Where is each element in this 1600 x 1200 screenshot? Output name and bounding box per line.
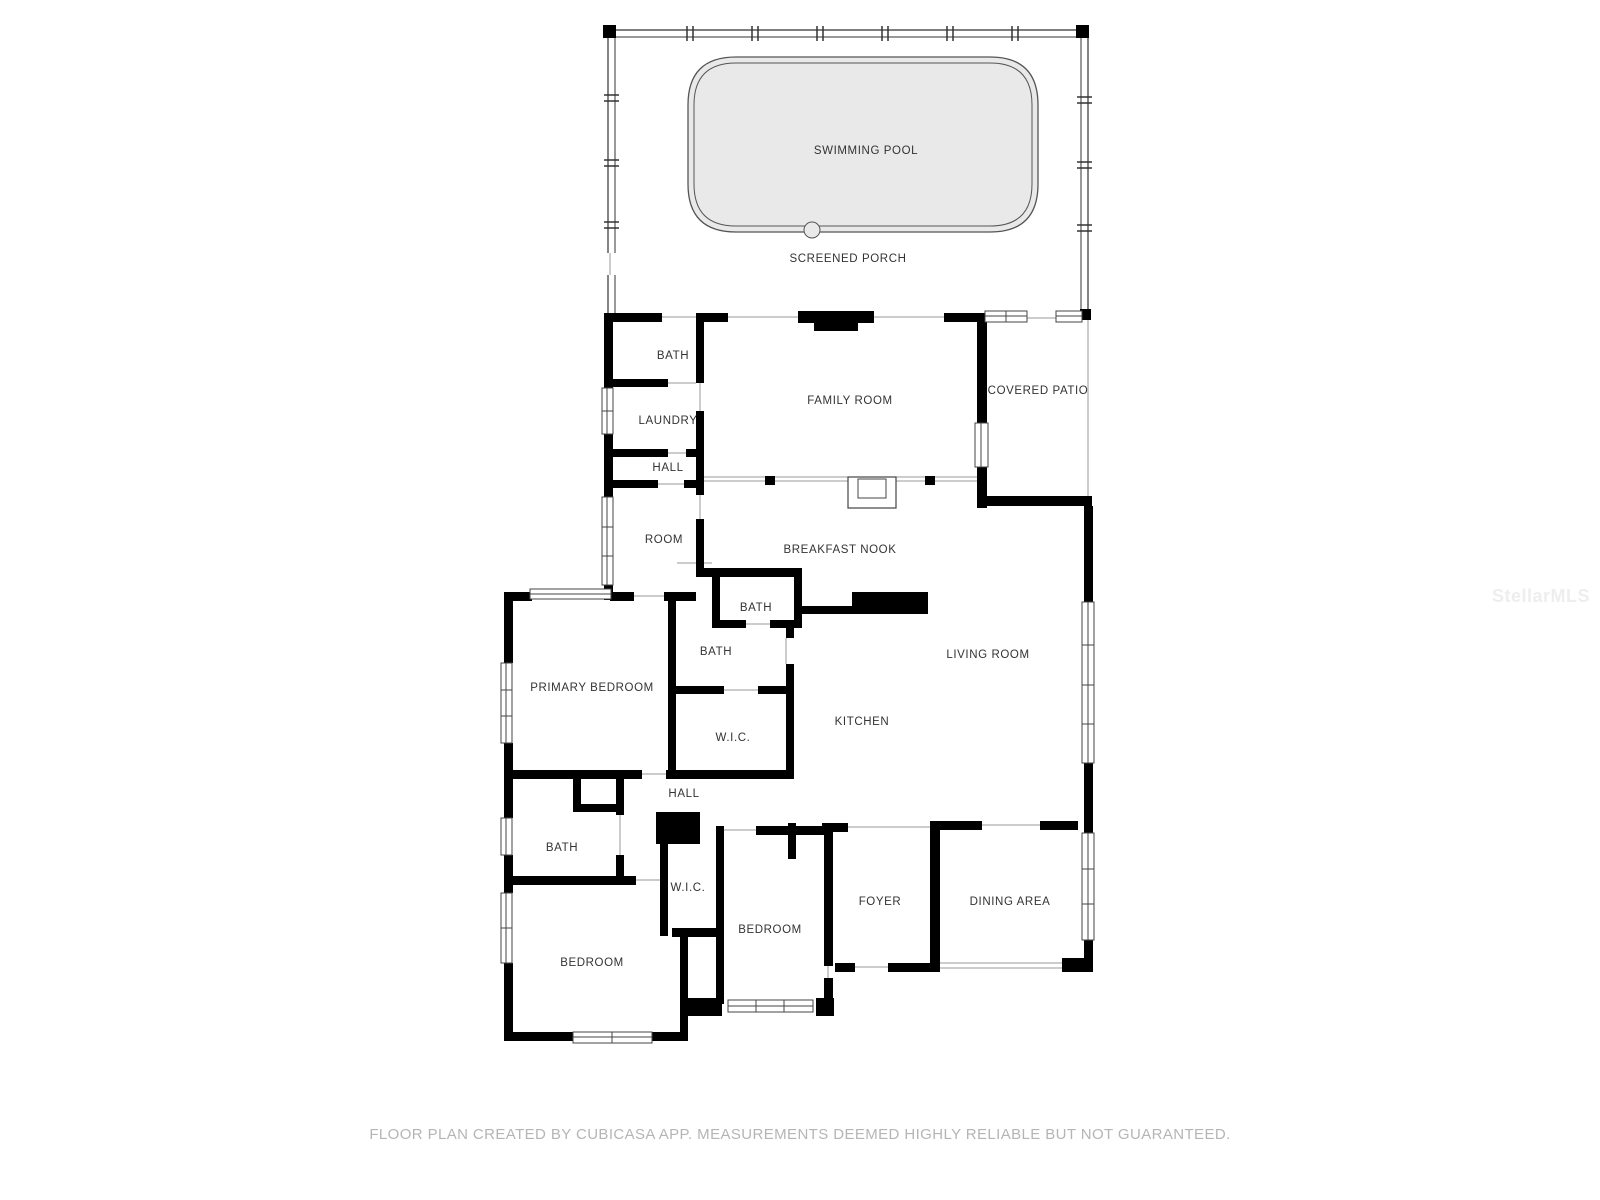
window-symbol — [1082, 602, 1094, 763]
window-symbol — [985, 311, 1027, 322]
room-label-bath-10: BATH — [700, 646, 732, 658]
footer-disclaimer: FLOOR PLAN CREATED BY CUBICASA APP. MEAS… — [0, 1126, 1600, 1143]
fireplace — [848, 477, 896, 508]
window-symbol — [530, 589, 611, 599]
room-label-laundry-3: LAUNDRY — [639, 415, 698, 427]
room-label-bath-9: BATH — [740, 602, 772, 614]
room-label-dining-area-20: DINING AREA — [970, 896, 1051, 908]
window-symbol — [602, 388, 613, 434]
window-symbol — [728, 1000, 813, 1012]
room-label-bedroom-18: BEDROOM — [738, 924, 802, 936]
room-label-breakfast-nook-8: BREAKFAST NOOK — [784, 544, 897, 556]
room-label-swimming-pool-0: SWIMMING POOL — [814, 145, 918, 157]
window-symbol — [975, 423, 988, 467]
room-label-hall-15: HALL — [668, 788, 699, 800]
room-label-w-i-c-17: W.I.C. — [671, 882, 706, 894]
window-symbol — [1082, 833, 1094, 940]
window-symbol — [501, 818, 512, 855]
room-label-kitchen-14: KITCHEN — [835, 716, 890, 728]
room-label-w-i-c-13: W.I.C. — [716, 732, 751, 744]
window-symbol — [602, 497, 613, 585]
room-label-family-room-4: FAMILY ROOM — [807, 395, 892, 407]
room-label-bath-16: BATH — [546, 842, 578, 854]
room-label-hall-6: HALL — [652, 462, 683, 474]
window-symbol — [501, 893, 512, 963]
window-symbol — [573, 1032, 652, 1043]
room-label-foyer-19: FOYER — [859, 896, 902, 908]
room-label-living-room-12: LIVING ROOM — [946, 649, 1029, 661]
stellar-mls-watermark: StellarMLS — [1492, 586, 1590, 607]
room-label-room-7: ROOM — [645, 534, 683, 546]
floorplan-drawing — [0, 0, 1600, 1200]
room-label-bath-2: BATH — [657, 350, 689, 362]
window-symbol — [1056, 311, 1082, 322]
room-label-screened-porch-1: SCREENED PORCH — [789, 253, 906, 265]
room-label-primary-bedroom-11: PRIMARY BEDROOM — [530, 682, 654, 694]
floorplan-page: SWIMMING POOLSCREENED PORCHBATHLAUNDRYFA… — [0, 0, 1600, 1200]
room-label-covered-patio-5: COVERED PATIO — [988, 385, 1089, 397]
window-symbol — [501, 663, 512, 743]
pool-step-notch — [804, 222, 820, 238]
room-label-bedroom-21: BEDROOM — [560, 957, 624, 969]
